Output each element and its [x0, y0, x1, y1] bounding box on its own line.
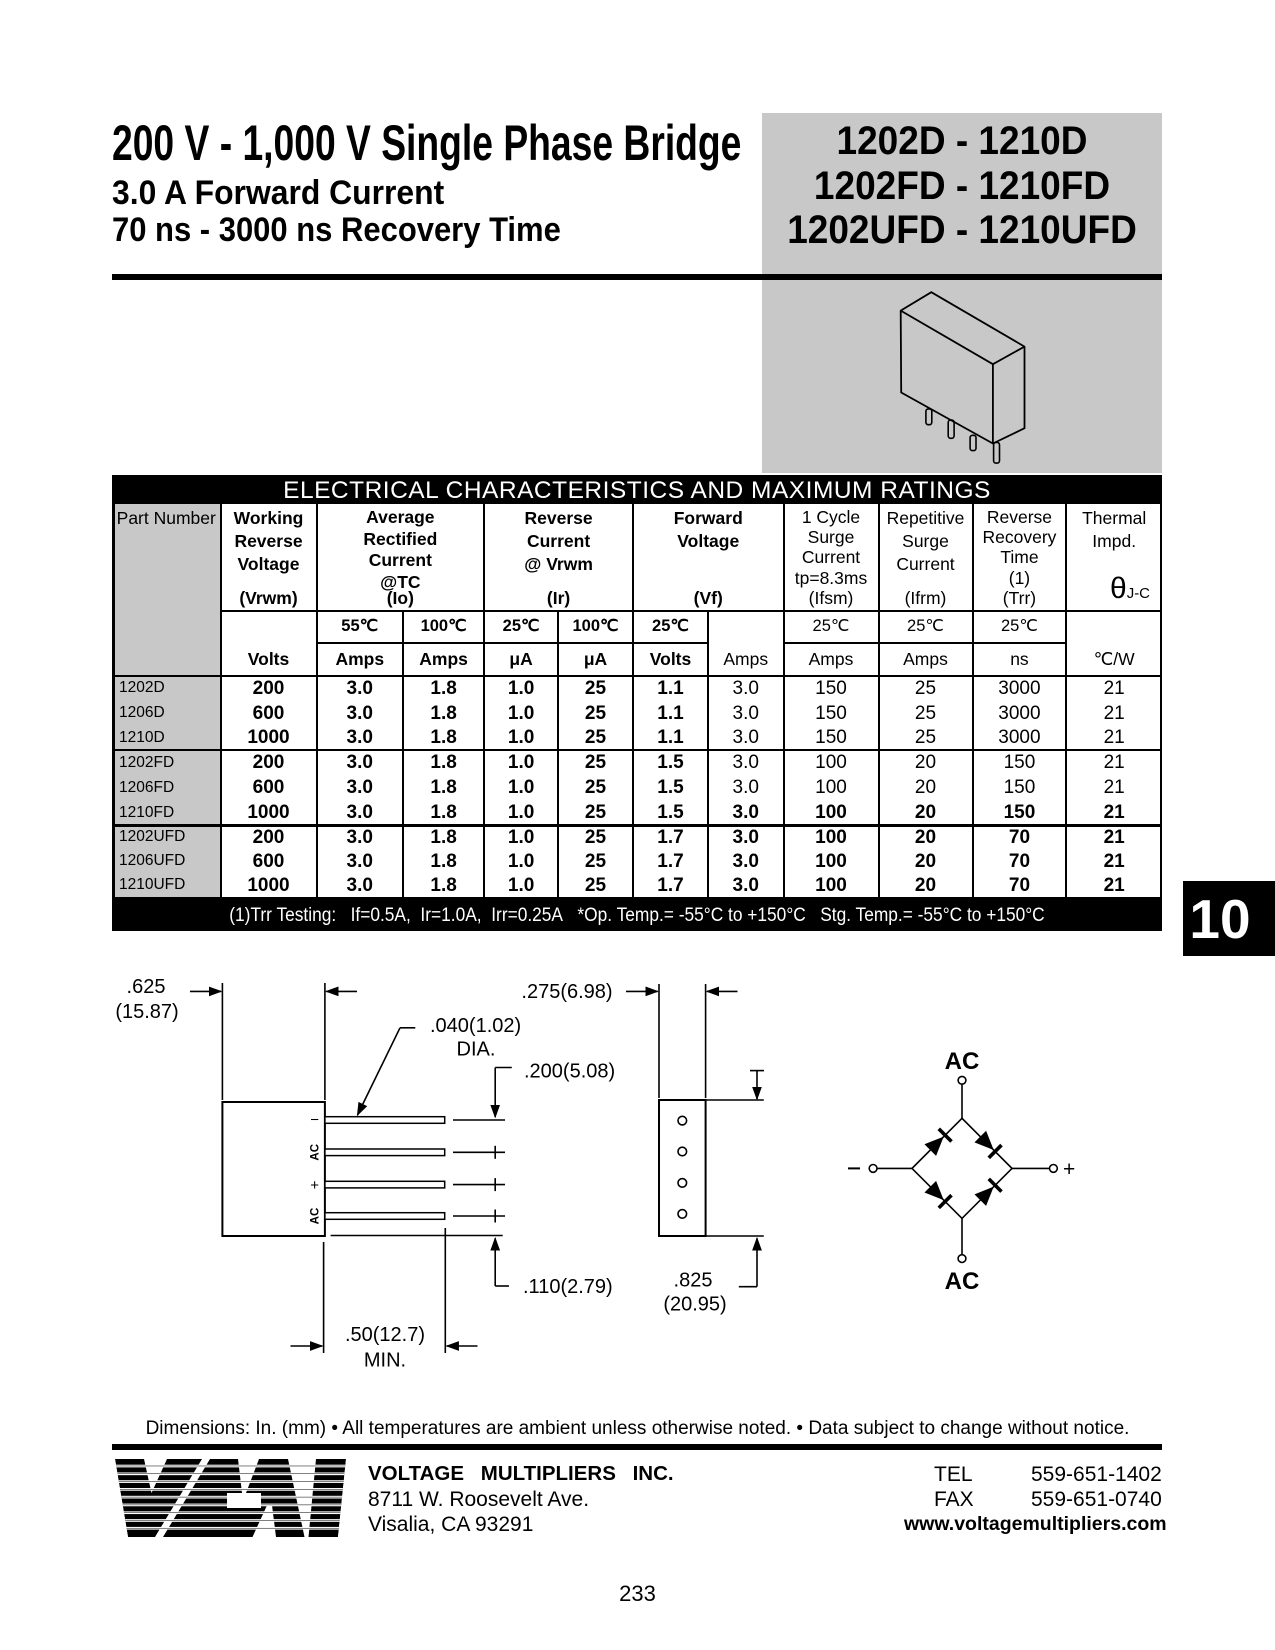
svg-text:.200(5.08): .200(5.08)	[524, 1061, 615, 1083]
svg-text:(20.95): (20.95)	[663, 1294, 726, 1316]
svg-text:.040(1.02): .040(1.02)	[430, 1015, 521, 1037]
svg-text:+: +	[1063, 1158, 1075, 1181]
svg-text:.625: .625	[127, 976, 166, 998]
svg-text:−: −	[310, 1112, 319, 1129]
svg-text:+: +	[310, 1177, 319, 1194]
svg-text:MIN.: MIN.	[364, 1350, 406, 1372]
svg-text:AC: AC	[945, 1048, 980, 1075]
svg-text:AC: AC	[310, 1208, 322, 1225]
svg-text:DIA.: DIA.	[457, 1039, 496, 1061]
svg-text:.275(6.98): .275(6.98)	[521, 981, 612, 1003]
svg-text:.825: .825	[674, 1270, 713, 1292]
svg-text:.110(2.79): .110(2.79)	[523, 1276, 613, 1298]
svg-text:AC: AC	[310, 1144, 322, 1161]
svg-text:.50(12.7): .50(12.7)	[345, 1324, 425, 1346]
svg-text:(15.87): (15.87)	[115, 1001, 178, 1023]
svg-text:AC: AC	[945, 1268, 980, 1295]
